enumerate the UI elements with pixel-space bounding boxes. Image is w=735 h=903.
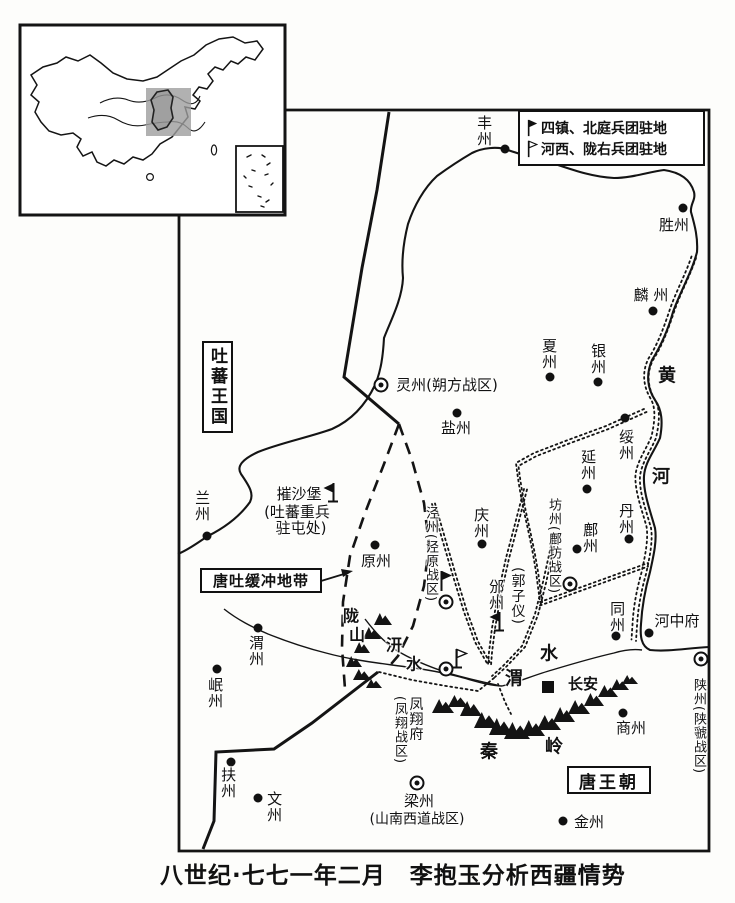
china-inset-map — [20, 25, 285, 215]
place-label: 文州 — [266, 791, 282, 823]
legend-item: 河西、陇右兵团驻地 — [525, 139, 698, 159]
place-marker-circled — [439, 595, 454, 610]
place-label: 汧 — [386, 636, 402, 653]
place-label: 山 — [349, 626, 365, 643]
place-label: 原州 — [361, 553, 391, 569]
legend-item-label: 河西、陇右兵团驻地 — [541, 139, 667, 159]
place-label: 丰州 — [476, 115, 492, 147]
garrison-flag-icon — [452, 648, 468, 670]
place-marker-dot — [559, 817, 568, 826]
place-label: 兰州 — [194, 490, 210, 522]
region-label-buffer-zone: 唐吐缓冲地带 — [200, 568, 322, 593]
place-label: 邠州 — [488, 579, 504, 611]
place-marker-dot — [371, 541, 380, 550]
hollow-flag-icon — [525, 139, 538, 159]
place-label: 河中府 — [654, 613, 699, 629]
place-label: (凤翔战区) — [392, 696, 406, 764]
place-marker-dot — [227, 758, 236, 767]
map-caption: 八世纪·七七一年二月 李抱玉分析西疆情势 — [160, 856, 622, 890]
place-marker-dot — [645, 629, 654, 638]
place-label: 凤翔府 — [407, 697, 422, 742]
place-marker-dot — [679, 204, 688, 213]
place-label: 陇 — [343, 607, 359, 624]
place-marker-dot — [594, 378, 603, 387]
place-label: 绥州 — [618, 429, 634, 461]
garrison-flag-icon — [488, 611, 504, 633]
region-label-tibetan-empire: 吐蕃王国 — [202, 341, 233, 433]
place-label: 河 — [652, 467, 670, 486]
filled-flag-icon — [525, 118, 538, 138]
place-marker-circled — [694, 652, 709, 667]
mountain-peak — [363, 627, 381, 639]
mountain-peak — [374, 613, 392, 625]
tang-tibet-border-north — [344, 112, 399, 424]
place-marker-dot — [649, 307, 658, 316]
place-marker-dot — [546, 373, 555, 382]
place-label: (山南西道战区) — [370, 812, 465, 827]
mountain-peak — [448, 695, 468, 707]
place-marker-square — [542, 681, 554, 693]
place-label: 扶州 — [220, 767, 236, 799]
place-marker-dot — [501, 145, 510, 154]
place-marker-dot — [625, 535, 634, 544]
place-label: 延州 — [580, 449, 596, 481]
place-label: 坊州(鄜坊战区) — [546, 498, 560, 594]
map-frame — [179, 110, 709, 851]
place-marker-dot — [213, 665, 222, 674]
place-label: 银州 — [590, 343, 606, 375]
legend: 四镇、北庭兵团驻地河西、陇右兵团驻地 — [518, 110, 705, 166]
place-label: 丹州 — [618, 503, 634, 535]
war-zone-dotted — [379, 257, 696, 715]
place-marker-circled — [563, 577, 578, 592]
place-marker-dot — [621, 414, 630, 423]
place-marker-dot — [478, 540, 487, 549]
map-page: 四镇、北庭兵团驻地河西、陇右兵团驻地 吐蕃王国 唐吐缓冲地带 唐王朝 丰州胜州麟… — [0, 0, 735, 903]
place-label: 摧沙堡 — [276, 486, 321, 502]
mountain-peak — [353, 669, 371, 680]
place-marker-circled — [410, 776, 425, 791]
place-label: 陕州(陕虢战区) — [691, 678, 705, 774]
garrison-flag-icon — [437, 570, 453, 592]
place-label: 麟 州 — [634, 287, 669, 303]
place-marker-dot — [254, 794, 263, 803]
place-label: 灵州(朔方战区) — [396, 377, 498, 393]
legend-item-label: 四镇、北庭兵团驻地 — [541, 118, 667, 138]
place-label: 庆州 — [473, 507, 489, 539]
place-marker-dot — [453, 409, 462, 418]
place-label: (郭子仪) — [509, 567, 524, 625]
place-label: 秦 — [480, 742, 498, 761]
buffer-label-arrow — [321, 569, 353, 581]
place-label: 胜州 — [659, 217, 689, 233]
place-label: 商州 — [616, 720, 646, 736]
place-label: 金州 — [574, 814, 604, 830]
inset-scs-box — [236, 146, 283, 212]
place-label: (吐蕃重兵 — [264, 504, 330, 520]
place-marker-dot — [203, 532, 212, 541]
place-label: 岭 — [545, 737, 563, 756]
place-marker-circled — [374, 378, 389, 393]
region-label-tang-dynasty: 唐王朝 — [567, 766, 651, 794]
place-label: 黄 — [658, 366, 676, 385]
place-label: 鄜州 — [582, 522, 598, 554]
place-marker-dot — [619, 709, 628, 718]
place-label: 盐州 — [441, 420, 471, 436]
place-label: 泾州(泾原战区) — [423, 506, 437, 602]
place-label: 同州 — [609, 601, 625, 633]
mountain-peak — [622, 675, 638, 684]
place-label: 水 — [540, 644, 558, 663]
qian-river — [365, 619, 497, 685]
place-label: 渭州 — [248, 635, 264, 667]
place-label: 夏州 — [541, 338, 557, 370]
place-label: 梁州 — [404, 793, 434, 809]
inset-region-outline — [151, 90, 173, 130]
place-label: 岷州 — [207, 677, 223, 709]
place-label: 长安 — [568, 676, 598, 692]
place-marker-dot — [583, 485, 592, 494]
garrison-flag-icon — [322, 482, 338, 504]
place-label: 驻屯处) — [276, 520, 327, 536]
place-marker-dot — [254, 624, 263, 633]
legend-item: 四镇、北庭兵团驻地 — [525, 118, 698, 138]
place-label: 水 — [406, 655, 422, 672]
place-label: 渭 — [505, 669, 523, 688]
